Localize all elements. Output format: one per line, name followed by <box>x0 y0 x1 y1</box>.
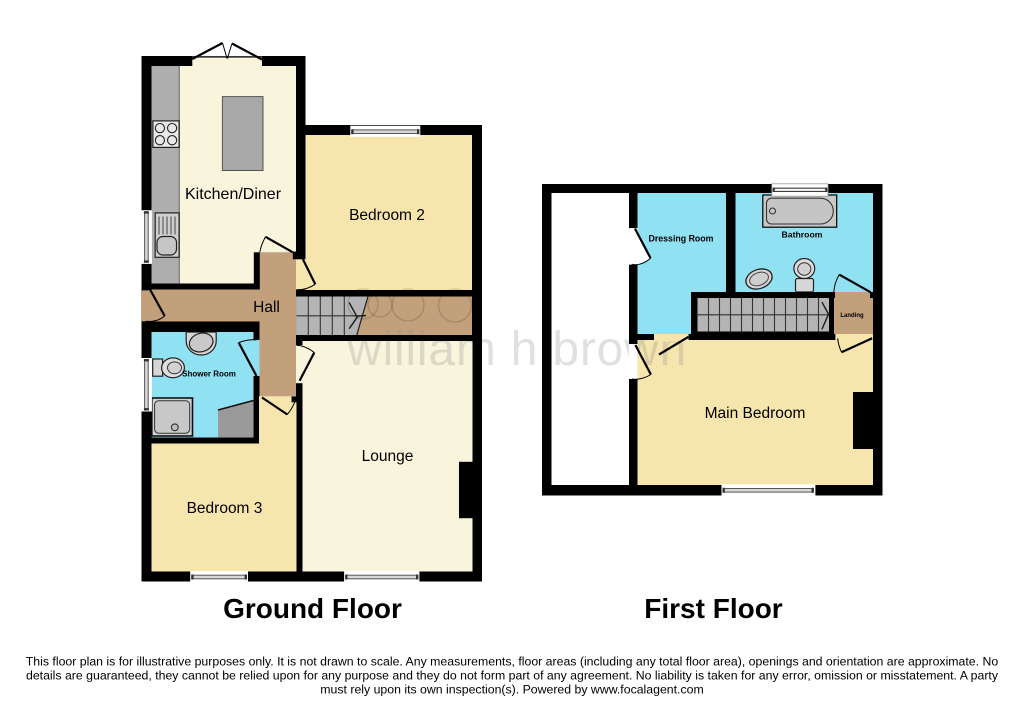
svg-text:must rely upon its own inspect: must rely upon its own inspection(s). Po… <box>320 683 703 697</box>
svg-text:Hall: Hall <box>253 299 280 316</box>
svg-text:Main Bedroom: Main Bedroom <box>705 405 806 422</box>
svg-text:Lounge: Lounge <box>362 448 414 465</box>
svg-text:Bathroom: Bathroom <box>781 230 822 240</box>
svg-text:details are guaranteed, they c: details are guaranteed, they cannot be r… <box>26 669 999 683</box>
svg-text:First Floor: First Floor <box>644 593 783 624</box>
svg-text:Shower Room: Shower Room <box>182 370 236 379</box>
svg-text:Kitchen/Diner: Kitchen/Diner <box>185 186 282 203</box>
svg-text:This floor plan is for illustr: This floor plan is for illustrative purp… <box>26 655 999 669</box>
svg-text:Bedroom 3: Bedroom 3 <box>187 500 263 517</box>
svg-text:Ground Floor: Ground Floor <box>223 593 402 624</box>
svg-text:Dressing Room: Dressing Room <box>648 234 713 244</box>
svg-text:Landing: Landing <box>840 313 864 319</box>
svg-text:Bedroom 2: Bedroom 2 <box>349 207 425 224</box>
